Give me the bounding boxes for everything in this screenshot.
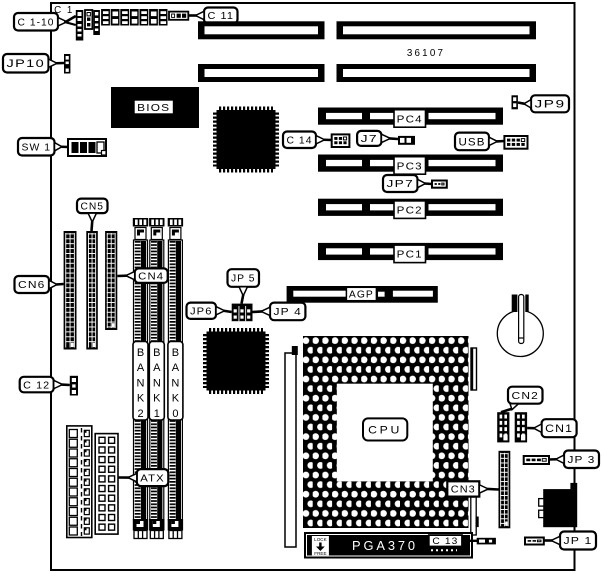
svg-text:JP10: JP10	[7, 58, 46, 70]
svg-text:J7: J7	[361, 134, 378, 145]
svg-text:K: K	[137, 393, 145, 405]
svg-text:AGP: AGP	[349, 290, 374, 301]
svg-text:PC4: PC4	[397, 114, 423, 125]
svg-text:A: A	[137, 362, 145, 374]
svg-text:N: N	[171, 377, 179, 389]
svg-text:CN3: CN3	[451, 485, 476, 496]
svg-text:B: B	[153, 347, 160, 359]
svg-text:0: 0	[172, 408, 178, 420]
svg-text:PGA370: PGA370	[352, 538, 418, 553]
svg-text:1: 1	[154, 408, 160, 420]
svg-text:K: K	[153, 393, 161, 405]
svg-text:B: B	[137, 347, 144, 359]
svg-text:JP6: JP6	[190, 306, 213, 317]
svg-text:A: A	[172, 362, 180, 374]
svg-text:LOCK: LOCK	[314, 537, 327, 542]
svg-text:FREE: FREE	[314, 551, 326, 556]
svg-text:C 1-10: C 1-10	[18, 17, 55, 28]
svg-text:ATX: ATX	[140, 473, 165, 484]
svg-text:C 11: C 11	[208, 11, 235, 22]
svg-text:A: A	[153, 362, 161, 374]
svg-text:2: 2	[137, 408, 143, 420]
svg-text:JP 3: JP 3	[568, 455, 596, 466]
svg-text:JP 4: JP 4	[274, 307, 302, 318]
svg-text:B: B	[172, 347, 179, 359]
svg-text:JP 1: JP 1	[564, 536, 593, 547]
svg-text:PC1: PC1	[397, 250, 423, 261]
svg-text:N: N	[137, 377, 145, 389]
svg-text:K: K	[172, 393, 180, 405]
svg-text:N: N	[153, 377, 161, 389]
svg-text:CN2: CN2	[512, 391, 540, 402]
svg-text:BIOS: BIOS	[137, 103, 170, 114]
svg-text:CN6: CN6	[18, 280, 46, 291]
svg-text:CPU: CPU	[368, 425, 402, 437]
svg-text:C 12: C 12	[23, 380, 50, 391]
svg-text:PC2: PC2	[397, 206, 423, 217]
svg-text:CN1: CN1	[545, 423, 573, 435]
svg-text:JP9: JP9	[535, 99, 566, 111]
svg-text:PC3: PC3	[397, 161, 423, 172]
svg-text:SW 1: SW 1	[22, 142, 52, 153]
svg-text:JP 5: JP 5	[231, 274, 256, 285]
svg-text:USB: USB	[459, 136, 486, 148]
svg-text:36107: 36107	[407, 48, 445, 59]
svg-text:JP7: JP7	[387, 179, 415, 190]
svg-text:CN5: CN5	[81, 202, 105, 213]
svg-text:C 13: C 13	[432, 536, 458, 546]
svg-text:CN4: CN4	[138, 271, 164, 282]
svg-text:C 14: C 14	[287, 135, 313, 146]
